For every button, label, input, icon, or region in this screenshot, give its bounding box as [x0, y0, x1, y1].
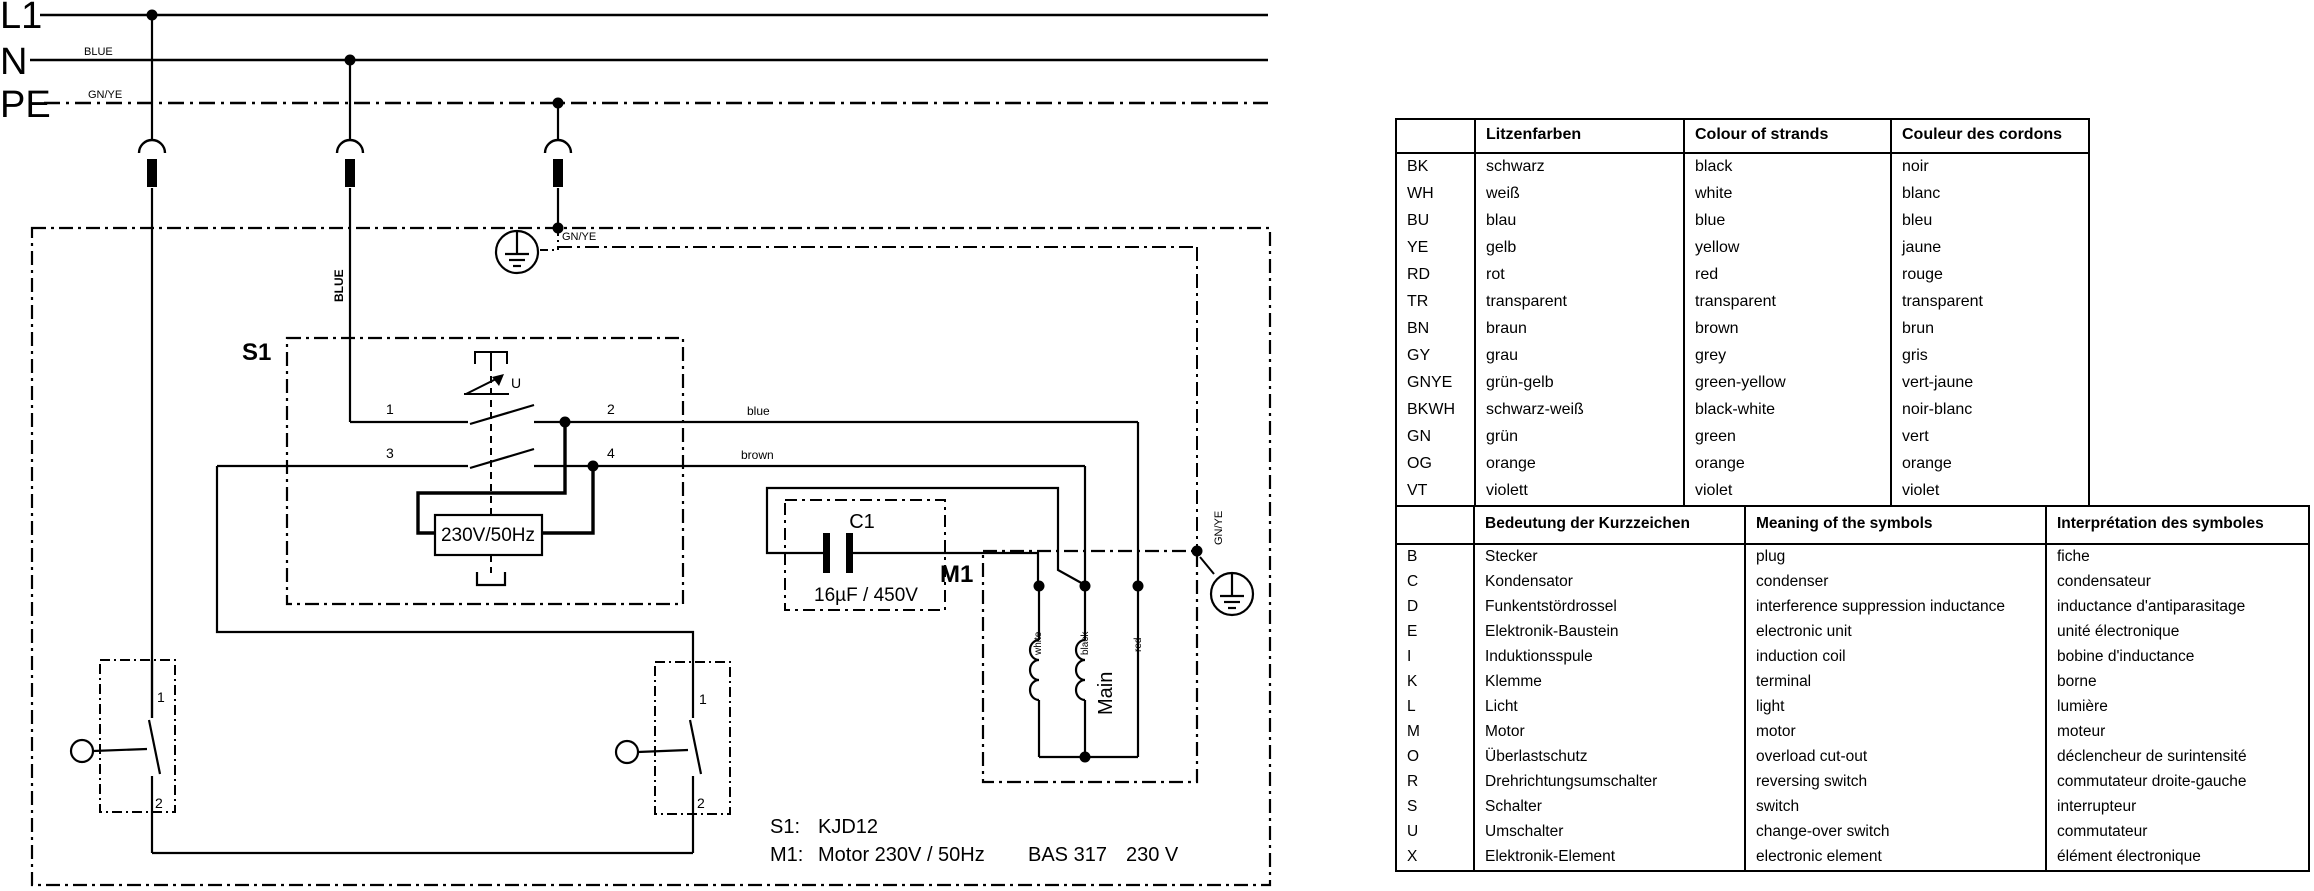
terminal-2-label: 2: [607, 401, 615, 417]
model-voltage: 230 V: [1126, 844, 1179, 866]
ground-icon: [496, 231, 538, 273]
table-row: YEgelbyellowjaune: [1396, 235, 2089, 262]
column-header: Litzenfarben: [1475, 119, 1684, 153]
value-cell: grün-gelb: [1475, 370, 1684, 397]
code-cell: BKWH: [1396, 397, 1475, 424]
pe-wire-color-tag: GN/YE: [88, 89, 122, 101]
value-cell: moteur: [2046, 720, 2309, 745]
value-cell: Drehrichtungsumschalter: [1474, 770, 1745, 795]
value-cell: vert-jaune: [1891, 370, 2089, 397]
code-cell: M: [1396, 720, 1474, 745]
interlock-switch-b: [152, 466, 701, 853]
value-cell: Klemme: [1474, 670, 1745, 695]
value-cell: terminal: [1745, 670, 2046, 695]
motor-windings: [1030, 581, 1144, 763]
code-cell: OG: [1396, 451, 1475, 478]
value-cell: electronic element: [1745, 845, 2046, 871]
value-cell: black: [1684, 153, 1891, 181]
table-row: VTviolettvioletviolet: [1396, 478, 2089, 505]
brown-wire-label: brown: [741, 448, 774, 462]
wire-color-table-wrap: LitzenfarbenColour of strandsCouleur des…: [1395, 118, 2088, 528]
terminal-3-label: 3: [386, 445, 394, 461]
value-cell: Überlastschutz: [1474, 745, 1745, 770]
table-row: EElektronik-Bausteinelectronic unitunité…: [1396, 620, 2309, 645]
code-cell: I: [1396, 645, 1474, 670]
table-row: BKschwarzblacknoir: [1396, 153, 2089, 181]
uv-coil-label: 230V/50Hz: [441, 525, 535, 546]
value-cell: black-white: [1684, 397, 1891, 424]
code-cell: X: [1396, 845, 1474, 871]
column-header: Meaning of the symbols: [1745, 506, 2046, 544]
value-cell: violet: [1891, 478, 2089, 505]
table-row: OÜberlastschutzoverload cut-outdéclenche…: [1396, 745, 2309, 770]
code-cell: GNYE: [1396, 370, 1475, 397]
table-row: BNbraunbrownbrun: [1396, 316, 2089, 343]
table-row: SSchalterswitchinterrupteur: [1396, 795, 2309, 820]
table-row: MMotormotormoteur: [1396, 720, 2309, 745]
value-cell: rouge: [1891, 262, 2089, 289]
value-cell: élément électronique: [2046, 845, 2309, 871]
table-row: GYgraugreygris: [1396, 343, 2089, 370]
value-cell: schwarz: [1475, 153, 1684, 181]
value-cell: bobine d'inductance: [2046, 645, 2309, 670]
power-rails: [30, 15, 1268, 103]
code-cell: C: [1396, 570, 1474, 595]
value-cell: inductance d'antiparasitage: [2046, 595, 2309, 620]
code-cell: D: [1396, 595, 1474, 620]
interlock-switch-a-box: [100, 660, 175, 812]
value-cell: unité électronique: [2046, 620, 2309, 645]
table-row: RDrotredrouge: [1396, 262, 2089, 289]
white-wire-label: white: [1033, 631, 1044, 656]
value-cell: light: [1745, 695, 2046, 720]
code-cell: YE: [1396, 235, 1475, 262]
value-cell: blau: [1475, 208, 1684, 235]
c1-wiring: [767, 488, 1085, 586]
column-header: Bedeutung der Kurzzeichen: [1474, 506, 1745, 544]
symbol-table: Bedeutung der KurzzeichenMeaning of the …: [1395, 505, 2310, 872]
value-cell: white: [1684, 181, 1891, 208]
value-cell: blue: [1684, 208, 1891, 235]
value-cell: grey: [1684, 343, 1891, 370]
value-cell: transparent: [1891, 289, 2089, 316]
red-wire-label: red: [1133, 638, 1144, 652]
capacitor-plate-icon: [823, 533, 830, 573]
code-cell: K: [1396, 670, 1474, 695]
interlock-switch-a: [71, 660, 160, 853]
table-row: TRtransparenttransparenttransparent: [1396, 289, 2089, 316]
value-cell: Elektronik-Element: [1474, 845, 1745, 871]
note-m1-value: Motor 230V / 50Hz: [818, 844, 985, 866]
value-cell: motor: [1745, 720, 2046, 745]
value-cell: interrupteur: [2046, 795, 2309, 820]
column-header: Interprétation des symboles: [2046, 506, 2309, 544]
page: { "diagram": { "rails": { "l1": "L1", "n…: [0, 0, 2314, 891]
interlock-a-terminal-1: 1: [157, 689, 165, 705]
value-cell: fiche: [2046, 544, 2309, 570]
value-cell: condenser: [1745, 570, 2046, 595]
table-row: DFunkentstördrosselinterference suppress…: [1396, 595, 2309, 620]
value-cell: déclencheur de surintensité: [2046, 745, 2309, 770]
table-row: UUmschalterchange-over switchcommutateur: [1396, 820, 2309, 845]
value-cell: violet: [1684, 478, 1891, 505]
rail-l1-label: L1: [0, 0, 42, 37]
actuator-bracket-icon: [477, 572, 505, 585]
code-cell: S: [1396, 795, 1474, 820]
value-cell: gris: [1891, 343, 2089, 370]
table-row: OGorangeorangeorange: [1396, 451, 2089, 478]
column-header: Couleur des cordons: [1891, 119, 2089, 153]
code-cell: R: [1396, 770, 1474, 795]
table-row: RDrehrichtungsumschalterreversing switch…: [1396, 770, 2309, 795]
value-cell: plug: [1745, 544, 2046, 570]
code-cell: RD: [1396, 262, 1475, 289]
code-cell: GN: [1396, 424, 1475, 451]
table-row: BSteckerplugfiche: [1396, 544, 2309, 570]
value-cell: green: [1684, 424, 1891, 451]
value-cell: Umschalter: [1474, 820, 1745, 845]
code-cell: E: [1396, 620, 1474, 645]
c1-title: C1: [849, 511, 875, 533]
header-row: Bedeutung der KurzzeichenMeaning of the …: [1396, 506, 2309, 544]
table-row: GNgrüngreenvert: [1396, 424, 2089, 451]
rail-n-label: N: [0, 41, 27, 83]
code-cell: B: [1396, 544, 1474, 570]
junction-dot: [1080, 752, 1091, 763]
ground-icon: [1211, 573, 1253, 615]
value-cell: red: [1684, 262, 1891, 289]
code-cell: U: [1396, 820, 1474, 845]
code-cell: VT: [1396, 478, 1475, 505]
code-cell: O: [1396, 745, 1474, 770]
code-cell: BU: [1396, 208, 1475, 235]
value-cell: grün: [1475, 424, 1684, 451]
wire-color-table: LitzenfarbenColour of strandsCouleur des…: [1395, 118, 2090, 534]
value-cell: reversing switch: [1745, 770, 2046, 795]
table-row: CKondensatorcondensercondensateur: [1396, 570, 2309, 595]
value-cell: change-over switch: [1745, 820, 2046, 845]
value-cell: grau: [1475, 343, 1684, 370]
u-label: U: [511, 375, 521, 391]
value-cell: noir-blanc: [1891, 397, 2089, 424]
value-cell: Kondensator: [1474, 570, 1745, 595]
interlock-b-terminal-2: 2: [697, 795, 705, 811]
value-cell: blanc: [1891, 181, 2089, 208]
table-row: WHweißwhiteblanc: [1396, 181, 2089, 208]
black-wire-label: black: [1080, 631, 1091, 655]
main-winding-label: Main: [1095, 672, 1117, 715]
value-cell: brun: [1891, 316, 2089, 343]
value-cell: orange: [1684, 451, 1891, 478]
rail-pe-label: PE: [0, 84, 51, 126]
note-s1-key: S1:: [770, 816, 800, 838]
plunger-icon: [616, 741, 638, 763]
value-cell: yellow: [1684, 235, 1891, 262]
value-cell: commutateur: [2046, 820, 2309, 845]
value-cell: Motor: [1474, 720, 1745, 745]
table-row: XElektronik-Elementelectronic elementélé…: [1396, 845, 2309, 871]
code-cell: WH: [1396, 181, 1475, 208]
code-cell: GY: [1396, 343, 1475, 370]
value-cell: bleu: [1891, 208, 2089, 235]
code-cell: BK: [1396, 153, 1475, 181]
value-cell: orange: [1475, 451, 1684, 478]
interlock-a-terminal-2: 2: [155, 795, 163, 811]
value-cell: brown: [1684, 316, 1891, 343]
code-cell: BN: [1396, 316, 1475, 343]
symbol-table-wrap: Bedeutung der KurzzeichenMeaning of the …: [1395, 505, 2308, 868]
n-wire-color-tag: BLUE: [84, 46, 113, 58]
value-cell: Elektronik-Baustein: [1474, 620, 1745, 645]
value-cell: commutateur droite-gauche: [2046, 770, 2309, 795]
value-cell: condensateur: [2046, 570, 2309, 595]
value-cell: Induktionsspule: [1474, 645, 1745, 670]
blue-wire-label: blue: [747, 404, 770, 418]
column-header: Colour of strands: [1684, 119, 1891, 153]
s1-switch-box: [287, 338, 683, 604]
value-cell: vert: [1891, 424, 2089, 451]
model-name: BAS 317: [1028, 844, 1107, 866]
header-row: LitzenfarbenColour of strandsCouleur des…: [1396, 119, 2089, 153]
m1-title: M1: [940, 561, 973, 588]
s1-title: S1: [242, 339, 271, 366]
plug-pole-icon: [337, 140, 363, 187]
value-cell: electronic unit: [1745, 620, 2046, 645]
value-cell: switch: [1745, 795, 2046, 820]
value-cell: overload cut-out: [1745, 745, 2046, 770]
value-cell: Schalter: [1474, 795, 1745, 820]
value-cell: transparent: [1475, 289, 1684, 316]
value-cell: green-yellow: [1684, 370, 1891, 397]
table-row: BKWHschwarz-weißblack-whitenoir-blanc: [1396, 397, 2089, 424]
code-cell: L: [1396, 695, 1474, 720]
value-cell: rot: [1475, 262, 1684, 289]
capacitor-plate-icon: [846, 533, 853, 573]
plug-pole-icon: [139, 140, 165, 187]
column-header: [1396, 506, 1474, 544]
code-cell: TR: [1396, 289, 1475, 316]
terminal-4-label: 4: [607, 445, 615, 461]
value-cell: noir: [1891, 153, 2089, 181]
table-row: BUblaubluebleu: [1396, 208, 2089, 235]
table-row: LLichtlightlumière: [1396, 695, 2309, 720]
value-cell: Licht: [1474, 695, 1745, 720]
value-cell: induction coil: [1745, 645, 2046, 670]
value-cell: interference suppression inductance: [1745, 595, 2046, 620]
value-cell: transparent: [1684, 289, 1891, 316]
note-s1-value: KJD12: [818, 816, 878, 838]
value-cell: jaune: [1891, 235, 2089, 262]
value-cell: Stecker: [1474, 544, 1745, 570]
value-cell: orange: [1891, 451, 2089, 478]
table-row: KKlemmeterminalborne: [1396, 670, 2309, 695]
value-cell: gelb: [1475, 235, 1684, 262]
interlock-b-terminal-1: 1: [699, 691, 707, 707]
earth-branch: [540, 228, 1214, 574]
value-cell: borne: [2046, 670, 2309, 695]
value-cell: violett: [1475, 478, 1684, 505]
s1-contact-1-2: [350, 405, 1138, 586]
table-row: GNYEgrün-gelbgreen-yellowvert-jaune: [1396, 370, 2089, 397]
terminal-1-label: 1: [386, 401, 394, 417]
blue-wire-vertical-label: BLUE: [332, 269, 346, 302]
plug-pole-icon: [545, 140, 571, 187]
note-m1-key: M1:: [770, 844, 803, 866]
value-cell: lumière: [2046, 695, 2309, 720]
wiring-schematic: L1 N PE BLUE GN/YE BLUE GN/YE GN/YE S1: [0, 0, 1390, 891]
value-cell: Funkentstördrossel: [1474, 595, 1745, 620]
plunger-icon: [71, 740, 93, 762]
value-cell: weiß: [1475, 181, 1684, 208]
value-cell: schwarz-weiß: [1475, 397, 1684, 424]
gnye-right-label: GN/YE: [1213, 511, 1225, 545]
table-row: IInduktionsspuleinduction coilbobine d'i…: [1396, 645, 2309, 670]
gnye-top-label: GN/YE: [562, 231, 596, 243]
value-cell: braun: [1475, 316, 1684, 343]
column-header: [1396, 119, 1475, 153]
c1-value: 16µF / 450V: [814, 585, 918, 606]
